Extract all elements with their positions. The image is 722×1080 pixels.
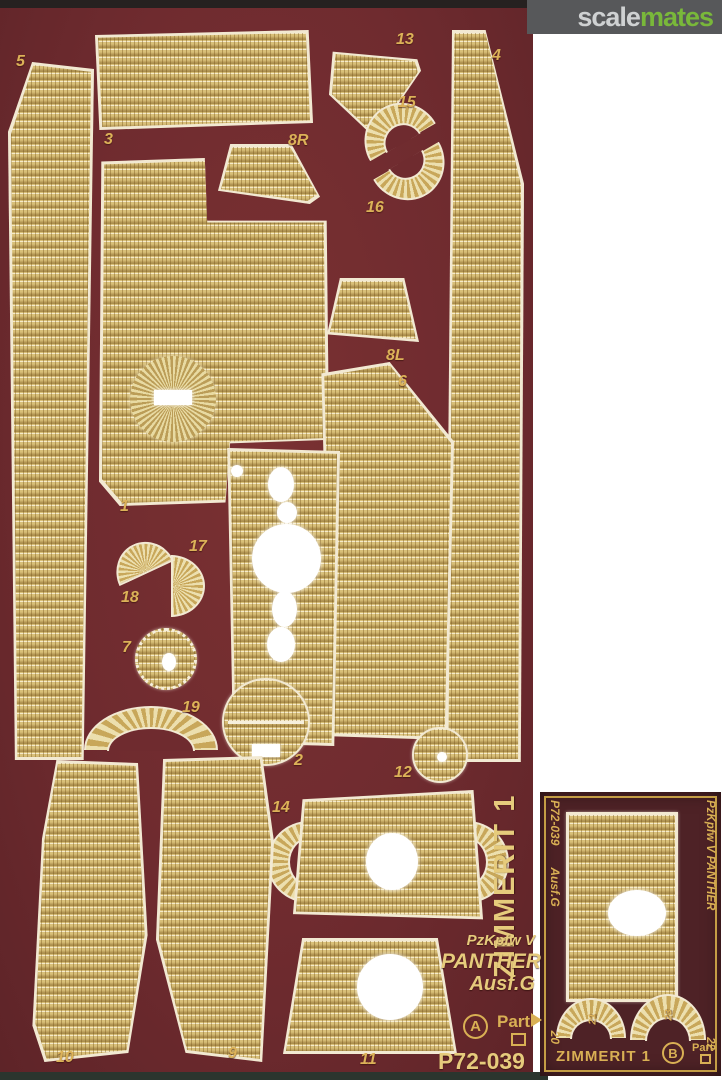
- small-fret-edge-code: P72-039: [548, 800, 562, 845]
- part-label-14: 14: [272, 800, 290, 816]
- part-logo-arrow-icon: [531, 1013, 542, 1027]
- part-label-7: 7: [122, 640, 131, 656]
- scale-mark-b: B: [662, 1042, 684, 1064]
- screenshot-root: scalemates: [0, 0, 722, 1080]
- part-label-1: 1: [120, 499, 129, 515]
- part-label-2: 2: [294, 753, 303, 769]
- vehicle-name-line3: Ausf.G: [441, 973, 535, 996]
- small-fret-bottom-title: ZIMMERIT 1: [556, 1048, 651, 1065]
- small-fret: 21 23 P72-039 Ausf.G 20 PzKpfw V PANTHER…: [540, 792, 721, 1076]
- part-label-11: 11: [360, 1052, 377, 1068]
- part-label-18: 18: [121, 590, 139, 606]
- part-label-12: 12: [394, 765, 412, 781]
- scalemates-logo[interactable]: scalemates: [527, 0, 722, 34]
- part-11-hole: [357, 954, 423, 1020]
- part-label-21: 21: [589, 1013, 599, 1024]
- part-label-19: 19: [182, 700, 200, 716]
- rear-plate-hole: [268, 467, 294, 502]
- part-label-10: 10: [56, 1050, 74, 1066]
- fret-part-3: [95, 30, 313, 130]
- part-label-17: 17: [189, 539, 207, 555]
- scale-mark-a: A: [463, 1014, 488, 1039]
- small-fret-left-edge-text: P72-039 Ausf.G 20: [548, 800, 562, 1044]
- small-fret-edge-num-20: 20: [548, 1031, 562, 1044]
- fret-part-6: [320, 362, 454, 740]
- part-label-4: 4: [492, 48, 501, 64]
- scalemates-logo-scale: scale: [577, 2, 640, 33]
- rear-plate-hole: [231, 465, 243, 477]
- part-label-8L: 8L: [386, 348, 405, 364]
- fret-part-4: [444, 30, 524, 762]
- part-label-13: 13: [396, 32, 414, 48]
- part-brand-text: Part: [497, 1012, 530, 1031]
- small-fret-edge-vehicle: PzKpfw V PANTHER: [704, 800, 716, 910]
- fret-part-5: [8, 62, 94, 760]
- small-part-logo-square-icon: [700, 1054, 711, 1064]
- part-label-9: 9: [228, 1046, 237, 1062]
- small-fret-right-edge-text: PzKpfw V PANTHER 22: [704, 800, 716, 1050]
- small-fret-edge-variant: Ausf.G: [548, 867, 562, 906]
- fret-part-8L: [327, 278, 419, 342]
- part-label-23: 23: [665, 1009, 675, 1020]
- part-label-15: 15: [398, 95, 416, 111]
- rear-plate-hole: [277, 502, 297, 523]
- part-logo-square-icon: [511, 1033, 526, 1046]
- vehicle-name-line1: PzKpfw V: [443, 932, 535, 949]
- rear-plate-hole: [267, 627, 295, 662]
- part-label-8R: 8R: [288, 133, 308, 149]
- part-label-16: 16: [366, 200, 384, 216]
- vehicle-name-line2: PANTHER: [441, 950, 535, 974]
- rear-plate-hole: [272, 591, 297, 627]
- fret-part-12: [412, 727, 468, 783]
- part-brand-logo: Part: [497, 1012, 542, 1046]
- product-code: P72-039: [438, 1048, 525, 1075]
- turret-gun-hole: [366, 833, 418, 890]
- part-label-5: 5: [16, 54, 25, 70]
- small-part-brand-text: Part: [692, 1042, 713, 1054]
- small-part-brand-logo: Part: [692, 1042, 713, 1064]
- part-20-hole: [608, 890, 666, 936]
- rear-plate-hole: [252, 524, 321, 593]
- scalemates-logo-mates: mates: [640, 2, 713, 33]
- fret-part-7: [135, 628, 197, 690]
- mg-port-slot: [154, 390, 192, 405]
- part-label-6: 6: [398, 374, 407, 390]
- part-label-3: 3: [104, 132, 113, 148]
